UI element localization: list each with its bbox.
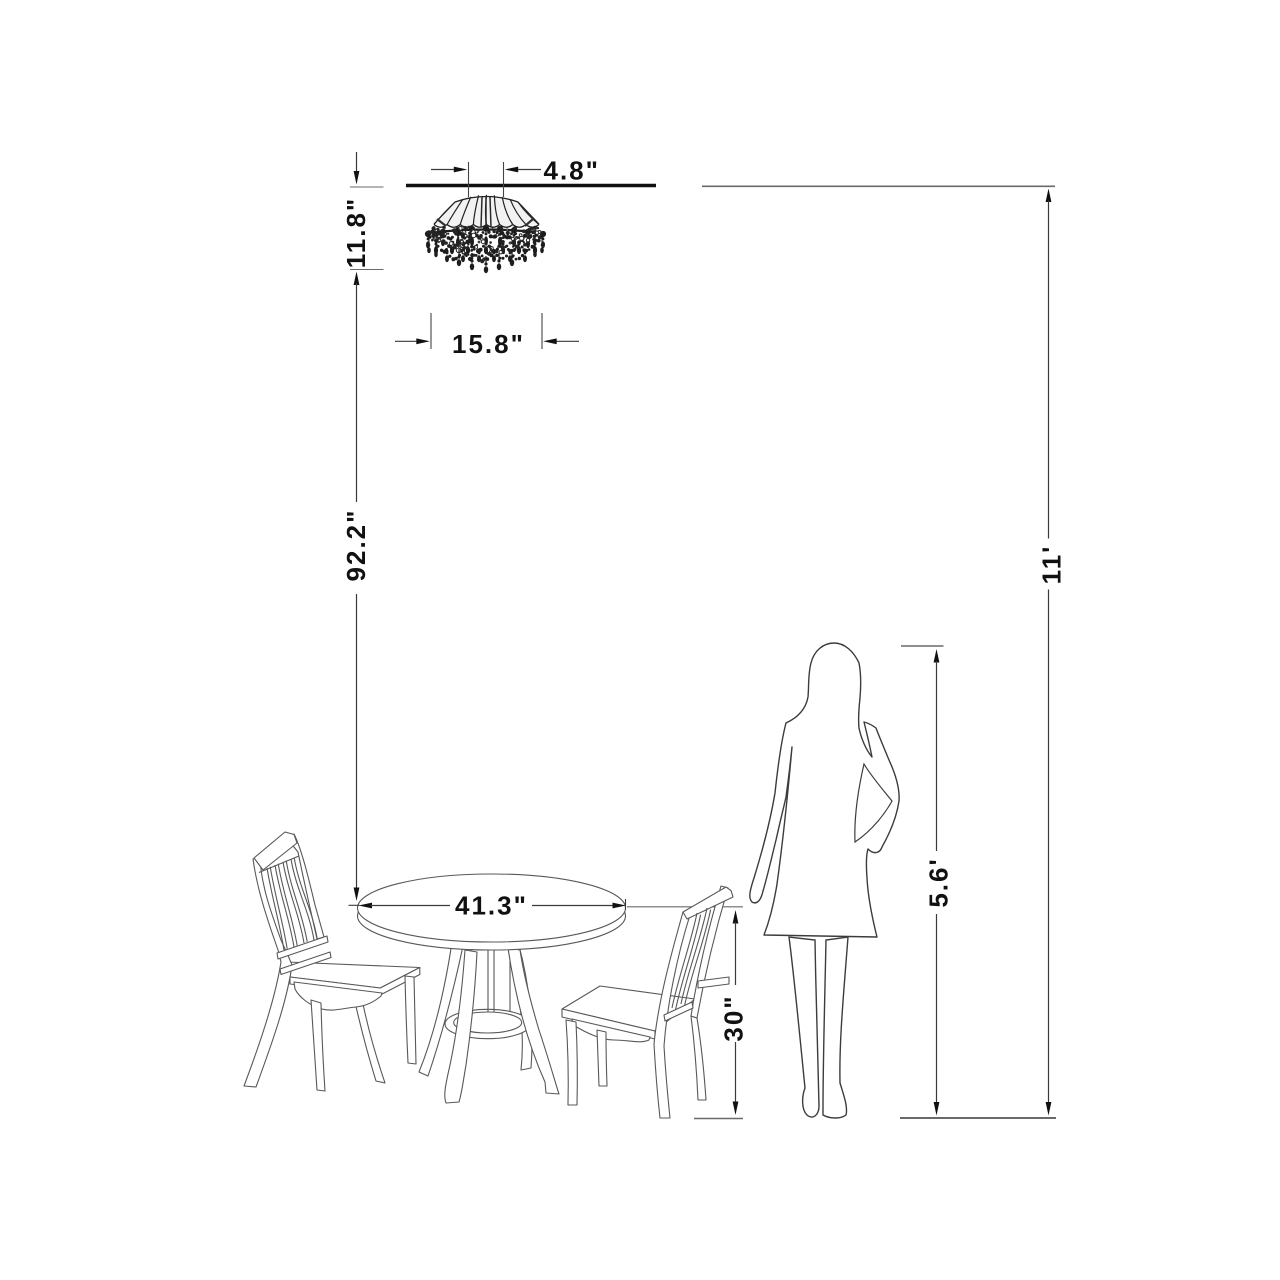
svg-text:30": 30" [719,994,749,1041]
svg-text:92.2": 92.2" [341,509,371,582]
svg-text:11.8": 11.8" [341,197,371,269]
svg-text:11': 11' [1037,545,1067,585]
svg-text:5.6': 5.6' [924,857,954,907]
svg-text:4.8": 4.8" [544,156,600,186]
svg-text:15.8": 15.8" [452,329,525,359]
svg-text:41.3": 41.3" [455,891,528,921]
